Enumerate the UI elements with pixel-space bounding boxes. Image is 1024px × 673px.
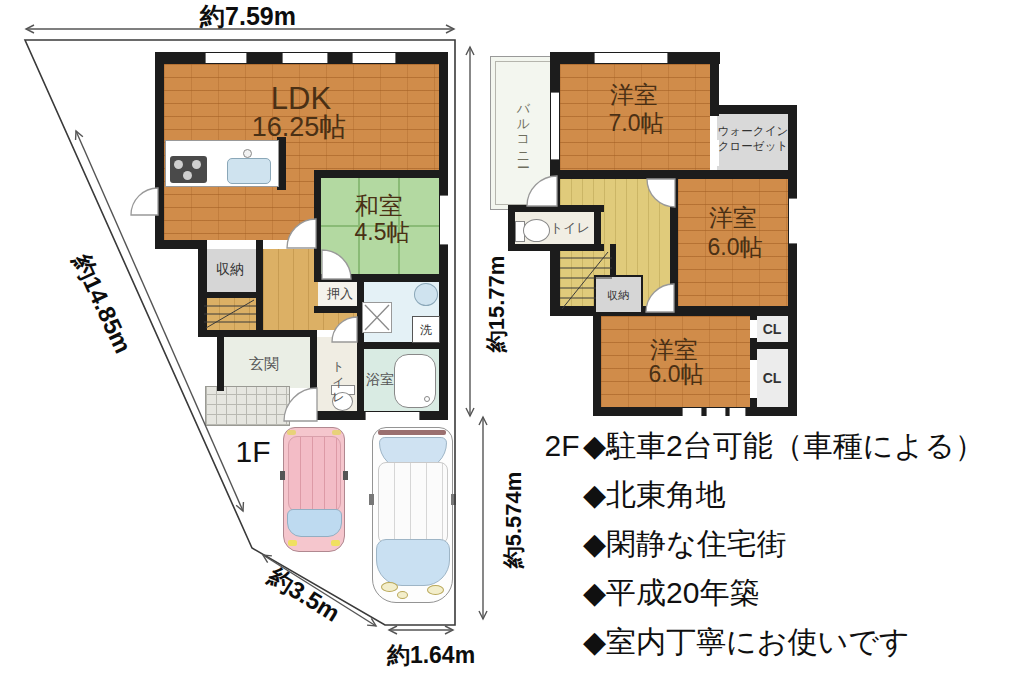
laundry-label: 洗 bbox=[420, 322, 432, 339]
dim-parking-label: 約5.574m bbox=[499, 450, 529, 590]
wall bbox=[508, 244, 604, 251]
stairs-1f bbox=[204, 298, 256, 330]
car-mirror bbox=[343, 471, 348, 480]
car-windshield bbox=[287, 509, 342, 537]
window bbox=[365, 412, 420, 420]
window bbox=[729, 408, 746, 416]
car-headlight bbox=[288, 540, 297, 546]
window bbox=[594, 53, 668, 63]
closet1-label: CL bbox=[763, 321, 782, 337]
car-rear-strip bbox=[378, 430, 446, 435]
toilet-2f-label: トイレ bbox=[550, 219, 590, 237]
window-balcony-door bbox=[551, 92, 559, 160]
wall bbox=[610, 244, 616, 278]
closet2-label: CL bbox=[763, 370, 782, 386]
car-large-white bbox=[372, 427, 453, 603]
wall bbox=[155, 52, 164, 249]
entrance-porch bbox=[205, 386, 290, 426]
genkan-label: 玄関 bbox=[249, 355, 279, 374]
wall bbox=[310, 330, 317, 420]
wall bbox=[750, 342, 797, 349]
car-taillight bbox=[332, 430, 341, 435]
car-compact-pink bbox=[283, 427, 345, 552]
feature-item: ◆閑静な住宅街 bbox=[583, 519, 985, 568]
closet-door-mark bbox=[750, 360, 757, 398]
wall bbox=[198, 292, 263, 298]
storage-1f-label: 収納 bbox=[216, 261, 244, 279]
washing-machine-icon bbox=[362, 302, 392, 333]
floor-plan-image: LDK 16.25帖 和室 4.5帖 収納 押入 玄関 トイレ 浴室 洗 洋室 … bbox=[0, 0, 1024, 673]
wall bbox=[550, 248, 560, 316]
wall bbox=[198, 240, 207, 337]
stove-icon bbox=[170, 156, 207, 183]
car-roof bbox=[288, 436, 341, 512]
dim-left-label: 約14.85m bbox=[58, 234, 146, 374]
wic-label-line2: クローゼット bbox=[718, 139, 788, 154]
feature-item: ◆駐車2台可能（車種による） bbox=[583, 421, 985, 470]
floor1-label: 1F bbox=[235, 435, 270, 469]
bedroom2-size: 6.0帖 bbox=[708, 232, 763, 263]
bedroom3-size: 6.0帖 bbox=[649, 359, 704, 390]
closet-door-mark bbox=[750, 320, 757, 338]
car-mirror bbox=[280, 471, 285, 480]
dim-top-label: 約7.59m bbox=[148, 0, 348, 33]
car-headlight bbox=[427, 585, 444, 595]
toilet-1f-label: トイレ bbox=[330, 353, 347, 400]
oshiire-label: 押入 bbox=[327, 285, 353, 303]
balcony-label: バルコニー bbox=[514, 93, 532, 162]
wall bbox=[593, 306, 601, 416]
window bbox=[352, 53, 396, 63]
kitchen-sink-icon bbox=[227, 158, 271, 184]
car-roof bbox=[378, 462, 448, 544]
wall bbox=[508, 205, 604, 212]
feature-item: ◆北東角地 bbox=[583, 470, 985, 519]
toilet-bowl-2f bbox=[523, 219, 550, 242]
window bbox=[682, 408, 702, 416]
car-mirror bbox=[451, 494, 456, 505]
wall bbox=[256, 240, 263, 337]
window bbox=[440, 195, 448, 245]
floor2-label: 2F bbox=[544, 429, 579, 463]
wall bbox=[670, 170, 678, 316]
storage-2f-label: 収納 bbox=[607, 288, 629, 303]
washitsu-size: 4.5帖 bbox=[355, 217, 410, 248]
feature-item: ◆室内丁寧にお使いです bbox=[583, 617, 985, 666]
car-headlight bbox=[397, 591, 408, 599]
dim-right-label: 約15.77m bbox=[482, 234, 512, 374]
feature-item: ◆平成20年築 bbox=[583, 568, 985, 617]
window bbox=[706, 408, 726, 416]
wall bbox=[314, 274, 441, 282]
wic-label-line1: ウォークイン bbox=[718, 124, 788, 139]
window bbox=[282, 53, 328, 63]
wall bbox=[314, 170, 439, 178]
wic-label: ウォークイン クローゼット bbox=[718, 124, 788, 154]
bedroom1-label: 洋室 bbox=[610, 79, 658, 111]
wall bbox=[314, 170, 321, 282]
dim-bottom-diagonal-label: 約3.5m bbox=[245, 550, 364, 641]
wall bbox=[594, 205, 601, 251]
car-headlight bbox=[331, 540, 340, 546]
window bbox=[205, 53, 247, 63]
wall bbox=[550, 306, 797, 316]
washbasin-icon bbox=[414, 283, 438, 306]
wall bbox=[710, 105, 797, 114]
wall bbox=[788, 105, 797, 416]
wall bbox=[217, 333, 224, 391]
bedroom2-label: 洋室 bbox=[709, 202, 757, 234]
car-taillight bbox=[287, 430, 296, 435]
car-mirror bbox=[369, 494, 374, 505]
faucet-icon bbox=[243, 149, 252, 158]
feature-list: ◆駐車2台可能（車種による） ◆北東角地 ◆閑静な住宅街 ◆平成20年築 ◆室内… bbox=[583, 421, 985, 666]
window bbox=[789, 198, 797, 244]
bathtub-drain bbox=[424, 396, 430, 402]
wall bbox=[314, 306, 364, 313]
car-headlight bbox=[381, 582, 398, 592]
dim-bottom-label: 約1.64m bbox=[361, 640, 501, 671]
bath-label: 浴室 bbox=[366, 371, 394, 389]
wall bbox=[357, 342, 448, 349]
bedroom1-size: 7.0帖 bbox=[609, 108, 664, 139]
car-windshield bbox=[376, 539, 450, 586]
ldk-size: 16.25帖 bbox=[252, 109, 347, 145]
